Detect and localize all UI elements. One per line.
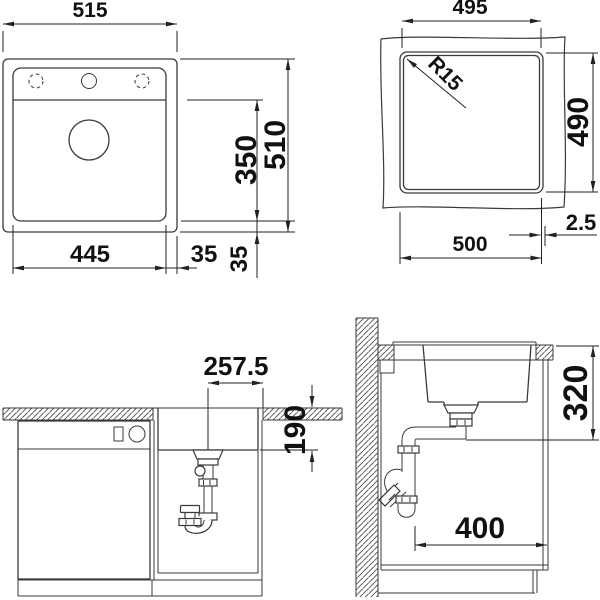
dim-drain-center-offset: 257.5 — [203, 351, 268, 381]
wall-batten — [380, 360, 394, 373]
side-view: 320 400 — [356, 318, 599, 597]
countertop-hatch-left — [3, 408, 153, 420]
plinth — [18, 580, 262, 596]
strainer-flange — [193, 450, 223, 459]
dim-rim-bottom: 35 — [226, 246, 253, 273]
dim-cutout-width-top: 495 — [452, 0, 487, 19]
counter-cut-left — [378, 345, 394, 360]
dim-bowl-inset-depth: 190 — [279, 405, 312, 455]
front-drain-trap — [179, 450, 223, 533]
technical-drawing-page: 515 510 350 445 35 35 — [0, 0, 600, 600]
dim-bowl-width: 445 — [70, 241, 110, 268]
cutout-opening — [400, 52, 543, 193]
dim-rim-right: 35 — [191, 241, 218, 268]
sink-outline — [3, 59, 177, 232]
cutout-view: R15 495 490 500 2.5 — [381, 0, 598, 264]
top-view: 515 510 350 445 35 35 — [3, 0, 295, 278]
dim-overall-width: 515 — [72, 0, 107, 22]
control-rect — [114, 427, 123, 441]
side-drain-trap — [379, 405, 478, 517]
control-knob — [129, 426, 145, 442]
dim-bowl-depth: 350 — [230, 135, 263, 185]
bowl-side-section — [423, 345, 531, 405]
left-cabinet — [18, 421, 150, 579]
dim-cutout-width-bottom: 500 — [452, 233, 487, 256]
dim-drain-distance: 400 — [455, 512, 505, 545]
dim-edge-gap: 2.5 — [566, 210, 597, 235]
plinth-side — [378, 570, 537, 593]
counter-cut-right — [536, 345, 553, 360]
wall-hatch — [356, 318, 378, 597]
strainer-side — [444, 405, 478, 413]
overflow-elbow — [195, 466, 205, 476]
sink-installation-drawing: 515 510 350 445 35 35 — [0, 0, 600, 600]
dim-overall-height: 510 — [259, 120, 292, 170]
side-cabinet — [378, 360, 548, 593]
front-view: 257.5 190 — [3, 351, 342, 596]
dim-drain-height: 320 — [557, 365, 595, 422]
dim-cutout-height: 490 — [562, 97, 595, 147]
side-view-dimensions: 320 400 — [415, 346, 599, 551]
sink-cabinet — [18, 420, 262, 596]
